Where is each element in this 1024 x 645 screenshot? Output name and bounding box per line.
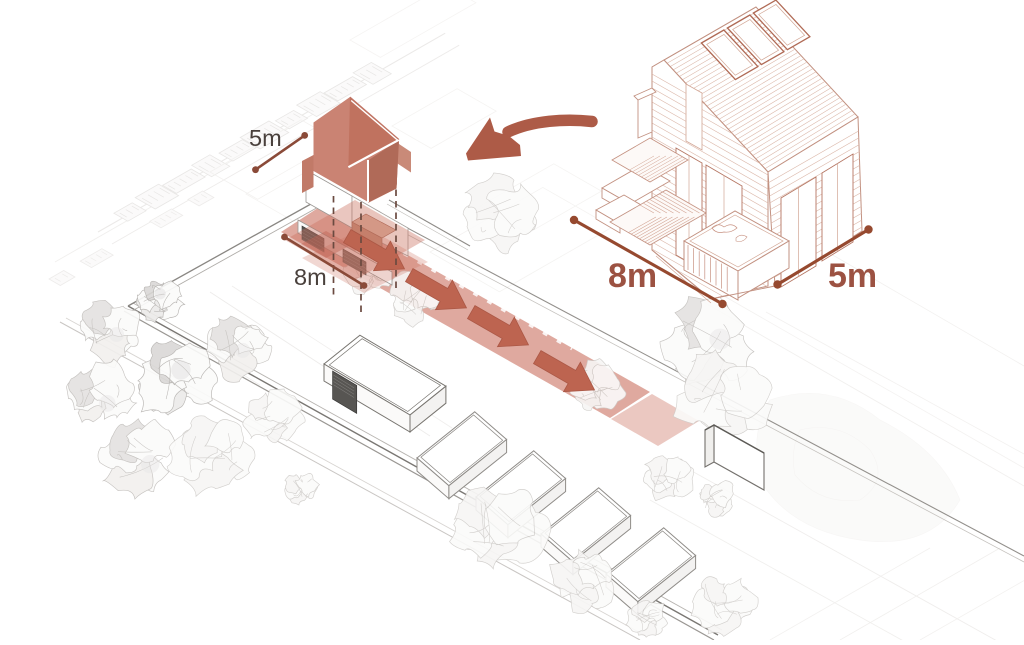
svg-text:5m: 5m: [828, 257, 877, 295]
svg-text:5m: 5m: [249, 125, 282, 151]
svg-text:8m: 8m: [294, 264, 327, 290]
svg-text:8m: 8m: [608, 257, 657, 295]
